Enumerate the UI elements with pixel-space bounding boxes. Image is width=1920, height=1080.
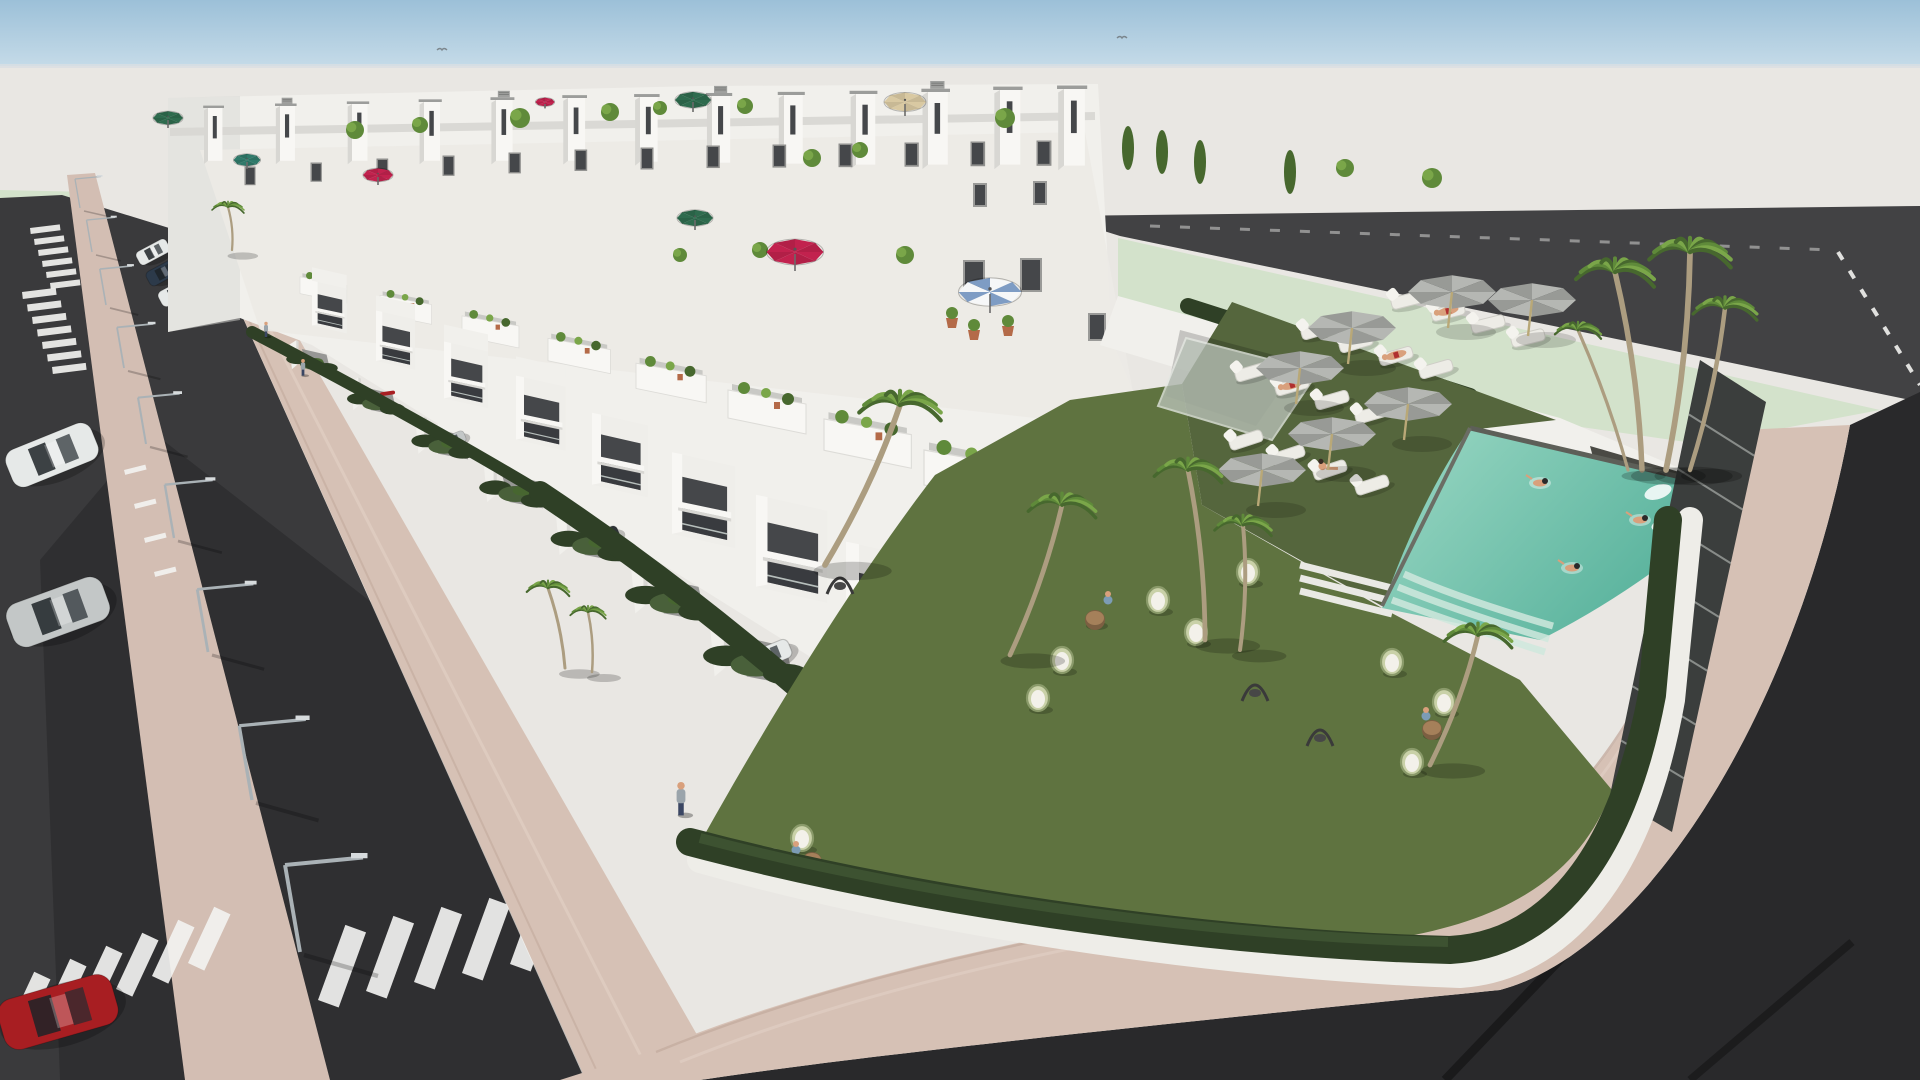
head: [264, 322, 267, 325]
lamp-head: [148, 322, 156, 324]
cypress-plant: [1194, 140, 1206, 184]
window: [312, 164, 321, 181]
palm-shadow: [587, 674, 621, 682]
flower-pot: [876, 432, 883, 440]
flower-pot: [585, 348, 590, 354]
window: [642, 149, 652, 168]
window: [972, 143, 983, 164]
palm-shadow: [1622, 471, 1666, 481]
cypress-plant: [1122, 126, 1134, 170]
flower-pot: [496, 325, 500, 330]
lamp-head: [127, 264, 134, 266]
window: [708, 147, 718, 166]
head: [677, 782, 684, 789]
swimmer-head: [1642, 515, 1648, 521]
stair-tower: [921, 81, 950, 169]
window: [975, 185, 985, 205]
window: [774, 146, 785, 166]
ac-unit: [930, 81, 944, 89]
window: [246, 168, 255, 184]
window: [1038, 142, 1050, 164]
legs: [302, 369, 305, 376]
tower-window: [790, 105, 795, 134]
window: [840, 145, 851, 165]
window: [1022, 260, 1040, 290]
ac-unit: [714, 86, 727, 93]
stair-tower: [1057, 86, 1087, 171]
terrace-plant: [645, 356, 656, 367]
lamp-head: [205, 477, 215, 480]
window: [576, 151, 586, 170]
window: [1090, 315, 1104, 339]
cypress-plant: [1156, 130, 1168, 174]
horizon-line: [0, 64, 1920, 68]
render-viewport: [0, 0, 1920, 1080]
torso: [264, 325, 268, 332]
terrace-plant: [387, 290, 395, 298]
lamp-head: [97, 175, 103, 177]
legs: [678, 802, 684, 815]
torso: [301, 363, 305, 370]
terrace-plant: [556, 332, 566, 342]
chair-cushion: [1405, 754, 1419, 772]
architectural-render-canvas: [0, 0, 1920, 1080]
ac-unit: [282, 98, 293, 104]
sky: [0, 0, 1920, 70]
chair-cushion: [1031, 690, 1045, 708]
head: [301, 359, 305, 363]
lamp-head: [296, 716, 310, 720]
torso: [677, 789, 686, 803]
cypress-plant: [1284, 150, 1296, 194]
lamp-head: [111, 216, 117, 218]
terracotta-pot: [1002, 326, 1014, 336]
terracotta-pot: [968, 330, 980, 340]
tower-window: [285, 114, 289, 137]
legs: [265, 331, 268, 337]
swimmer-head: [1574, 563, 1580, 569]
window: [906, 144, 917, 165]
window: [444, 157, 453, 175]
stair-tower: [993, 87, 1022, 169]
flower-pot: [677, 374, 682, 380]
tower-window: [1071, 101, 1077, 133]
terracotta-pot: [946, 318, 958, 328]
terrace-plant: [937, 440, 952, 455]
chair-cushion: [1241, 564, 1255, 582]
terrace-plant: [738, 382, 750, 394]
swimmer-head: [1542, 478, 1548, 484]
lamp-head: [173, 391, 182, 394]
tower-window: [646, 107, 651, 134]
window: [510, 154, 520, 172]
tower-window: [213, 116, 217, 138]
chair-cushion: [1437, 694, 1451, 712]
chair-cushion: [1385, 654, 1399, 672]
tower-window: [429, 111, 433, 136]
chair-cushion: [1151, 592, 1165, 610]
lamp-head: [351, 853, 368, 858]
terrace-plant: [469, 310, 478, 319]
window: [1035, 183, 1045, 203]
tower-window: [574, 108, 579, 135]
stair-tower: [203, 106, 224, 164]
tower-window: [718, 106, 723, 134]
chair-cushion: [1189, 624, 1203, 642]
stair-tower: [275, 98, 297, 164]
lamp-head: [245, 581, 257, 585]
tower-window: [862, 105, 867, 135]
tower-window: [935, 103, 941, 134]
flower-pot: [774, 402, 780, 409]
tower-window: [502, 109, 507, 135]
terrace-plant: [835, 410, 848, 423]
palm-shadow: [228, 252, 259, 259]
